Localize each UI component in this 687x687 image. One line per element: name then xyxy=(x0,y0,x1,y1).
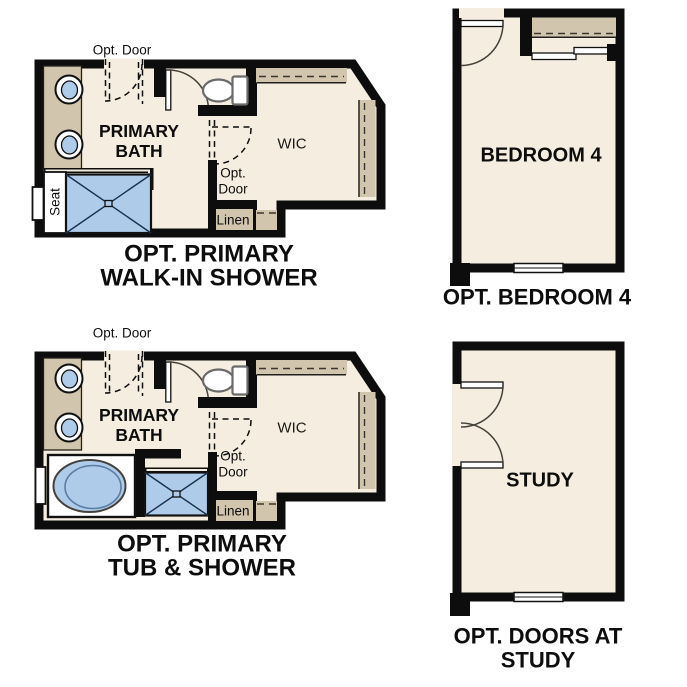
toilet-bowl xyxy=(203,370,234,392)
wc-door-leaf xyxy=(166,362,171,402)
linen-label: Linen xyxy=(216,212,249,228)
sink-bowl xyxy=(62,81,78,99)
caption-line: WALK-IN SHOWER xyxy=(100,266,317,290)
sink-bowl xyxy=(62,419,78,437)
floorplan-canvas xyxy=(0,0,687,687)
caption-line: TUB & SHOWER xyxy=(108,556,296,580)
plan-walk-in-shower xyxy=(33,59,382,234)
linen-wall xyxy=(253,209,256,230)
room-label-primary-bath: PRIMARY BATH xyxy=(87,121,191,161)
room-label-primary-bath: PRIMARY BATH xyxy=(87,405,191,445)
shower-drain xyxy=(173,491,180,497)
caption-line: STUDY xyxy=(454,648,623,672)
corner-notch xyxy=(450,263,470,286)
seat-label: Seat xyxy=(47,188,63,216)
opt-door-label: Opt. Door xyxy=(210,166,256,197)
room-label-bedroom-4: BEDROOM 4 xyxy=(480,145,601,168)
linen-label: Linen xyxy=(216,503,249,519)
closet-wall xyxy=(520,13,532,56)
linen-wall xyxy=(208,200,257,210)
room-label-wic: WIC xyxy=(277,136,306,153)
sink-bowl xyxy=(62,370,78,388)
wc-door-leaf xyxy=(166,70,171,110)
opt-door-label: Opt. Door xyxy=(93,42,152,58)
toilet-tank xyxy=(233,367,248,395)
corner-notch xyxy=(450,593,470,616)
door-opening xyxy=(459,8,504,18)
wc-wall xyxy=(154,60,166,97)
tub-shower-wall xyxy=(135,449,181,459)
tub-niche xyxy=(36,467,46,504)
door-leaf xyxy=(461,21,503,27)
linen-wall xyxy=(208,491,257,501)
wic-shelf xyxy=(359,100,376,197)
room-label-wic: WIC xyxy=(277,420,306,437)
tub-shower-wall xyxy=(135,449,145,517)
plan-caption: OPT. PRIMARY TUB & SHOWER xyxy=(108,533,296,580)
door-leaf xyxy=(461,462,503,468)
caption-line: OPT. DOORS AT xyxy=(454,625,623,649)
room-label-study: STUDY xyxy=(506,470,574,493)
toilet-bowl xyxy=(203,80,234,102)
sliding-closet-door xyxy=(532,53,576,60)
caption-line: OPT. PRIMARY xyxy=(100,243,317,267)
caption-line: OPT. BEDROOM 4 xyxy=(443,285,631,309)
seat-niche xyxy=(33,187,44,220)
floorplan-options-sheet: { "colors": { "background": "#ffffff", "… xyxy=(0,0,687,687)
plan-caption: OPT. DOORS AT STUDY xyxy=(454,625,623,672)
sink-bowl xyxy=(62,136,78,154)
wic-shelf xyxy=(256,68,347,83)
toilet-tank xyxy=(233,77,248,105)
wc-wall xyxy=(154,352,166,389)
opt-door-label: Opt. Door xyxy=(93,325,152,341)
plan-caption: OPT. BEDROOM 4 xyxy=(443,285,631,309)
wic-shelf xyxy=(359,392,376,489)
opt-door-label: Opt. Door xyxy=(210,449,256,480)
plan-caption: OPT. PRIMARY WALK-IN SHOWER xyxy=(100,243,317,290)
double-door-opening xyxy=(452,384,462,466)
closet-wall xyxy=(607,44,620,61)
wic-shelf xyxy=(256,360,347,375)
shower-drain xyxy=(105,201,112,207)
door-leaf xyxy=(461,382,503,388)
caption-line: OPT. PRIMARY xyxy=(108,533,296,557)
linen-wall xyxy=(253,500,256,521)
